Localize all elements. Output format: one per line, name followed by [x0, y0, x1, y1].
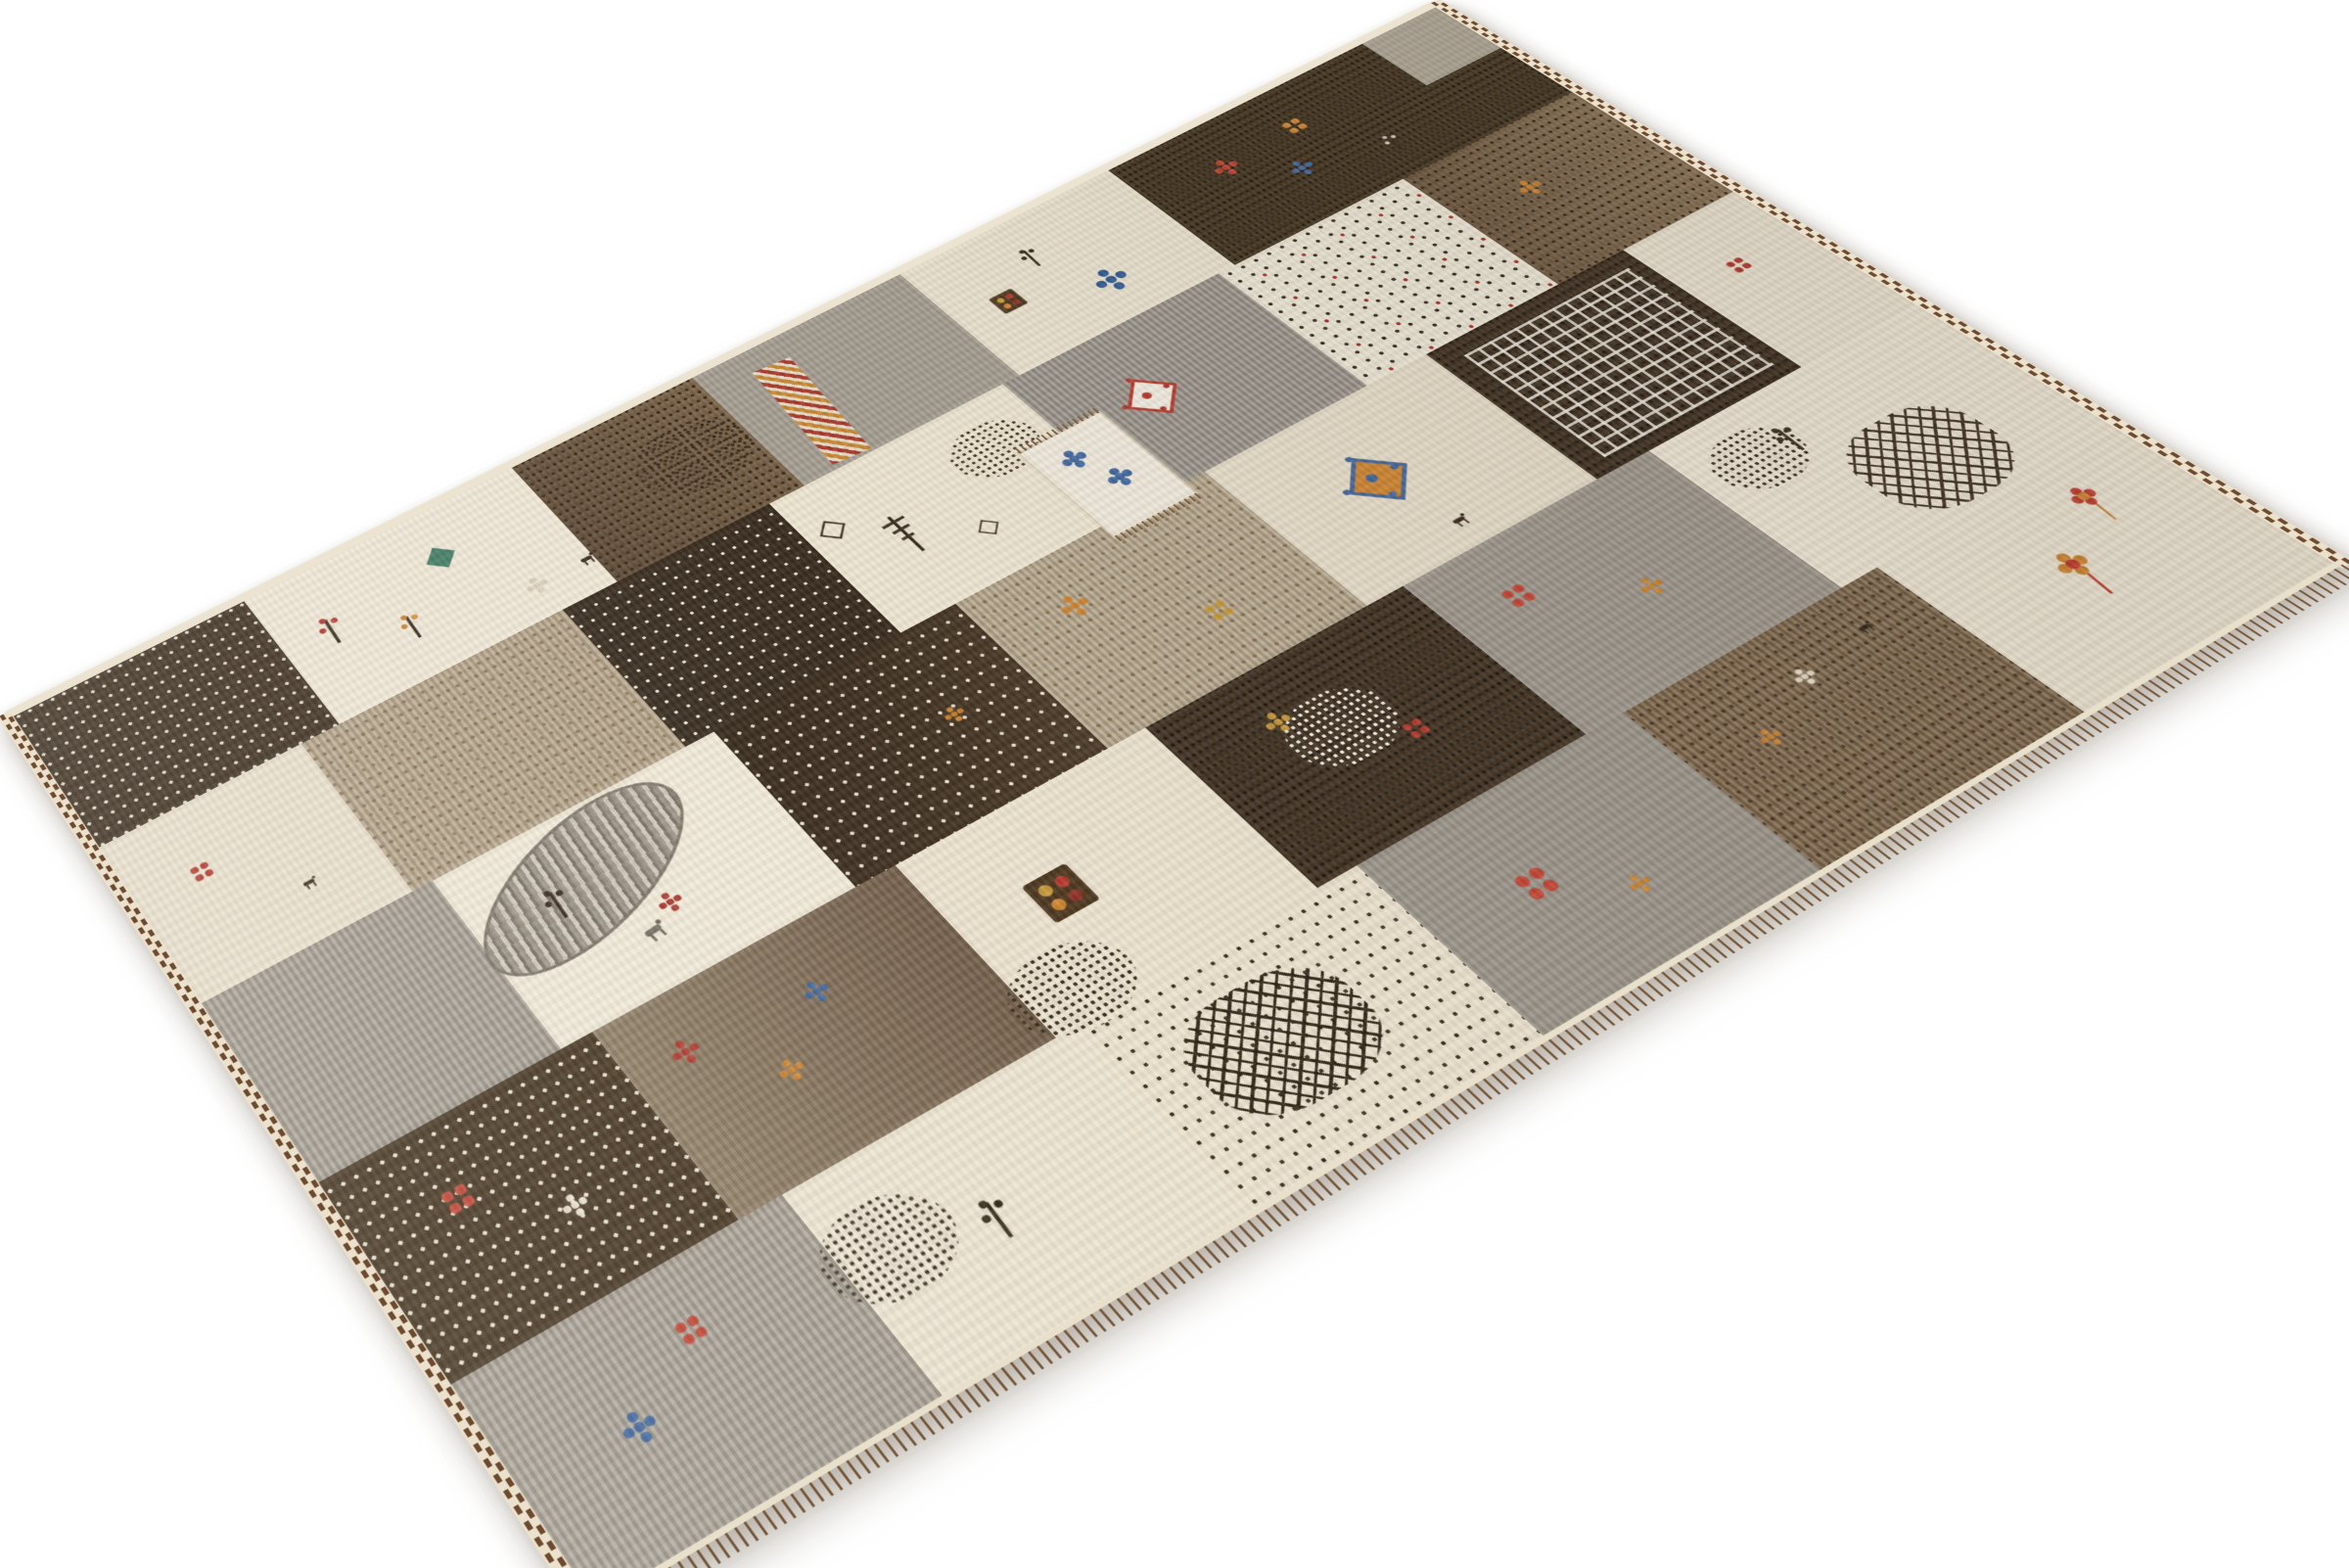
motif-sprig	[305, 610, 356, 651]
motif-box4	[989, 288, 1029, 313]
motif-minirug	[1020, 413, 1195, 536]
motif-tree	[873, 510, 938, 559]
motif-animal	[1448, 510, 1477, 529]
motif-flower	[1221, 163, 1232, 170]
motif-diamond	[425, 546, 456, 570]
motif-flower	[1524, 184, 1536, 191]
motif-box4	[1021, 863, 1100, 924]
motif-flower4	[1499, 589, 1515, 600]
motif-dotcloud	[795, 1173, 985, 1327]
motif-lattice	[1821, 391, 2041, 525]
motif-flower	[665, 898, 675, 906]
motif-zigzag	[753, 357, 872, 465]
motif-gridwhite	[1464, 268, 1774, 457]
motif-dotcloud	[1688, 415, 1830, 503]
motif-flower	[1068, 601, 1081, 610]
motif-sprig	[962, 1188, 1032, 1248]
rug	[10, 5, 2339, 1568]
motif-leaf	[446, 759, 721, 1003]
motif-flower4	[673, 1321, 689, 1335]
motif-dotcloud	[984, 923, 1162, 1056]
motif-flower	[1297, 164, 1308, 171]
motif-lattice	[1156, 946, 1412, 1138]
motif-medallion	[1106, 369, 1189, 423]
motif-sprig	[1009, 244, 1052, 271]
motif-flower	[631, 1420, 647, 1434]
motif-animal	[299, 873, 324, 892]
motif-flowerstem	[2065, 485, 2132, 527]
motif-flower	[786, 1065, 798, 1075]
motif-flower4	[1725, 261, 1736, 268]
motif-animal	[637, 914, 676, 945]
motif-diamond	[976, 519, 1001, 536]
motif-flower	[532, 581, 542, 588]
motif-flower	[1800, 673, 1811, 680]
motif-sprig	[389, 607, 436, 644]
rug-product-photo	[0, 0, 2349, 1568]
motif-animal	[1853, 618, 1881, 636]
motif-animal	[576, 549, 603, 568]
motif-medallion	[1322, 445, 1422, 511]
motif-flower	[1646, 582, 1658, 590]
motif-flower	[1103, 274, 1119, 284]
motif-flowerstem	[2050, 551, 2133, 603]
motif-flower4	[1512, 874, 1533, 890]
motif-dotcloud	[1262, 672, 1422, 783]
motif-diamond	[817, 519, 848, 540]
motif-flower4	[439, 1190, 455, 1204]
motif-flower	[1765, 733, 1775, 741]
motif-flower	[1635, 880, 1645, 888]
motif-sprig	[1373, 130, 1412, 154]
motif-flower	[949, 711, 959, 717]
motif-flower4	[1281, 121, 1293, 128]
motif-flower	[679, 1046, 692, 1057]
motif-flower	[810, 987, 822, 995]
motif-flower4	[189, 866, 200, 875]
motif-flower4	[1203, 605, 1217, 615]
motif-flower	[570, 1200, 581, 1210]
motif-dotcloud	[616, 403, 773, 509]
